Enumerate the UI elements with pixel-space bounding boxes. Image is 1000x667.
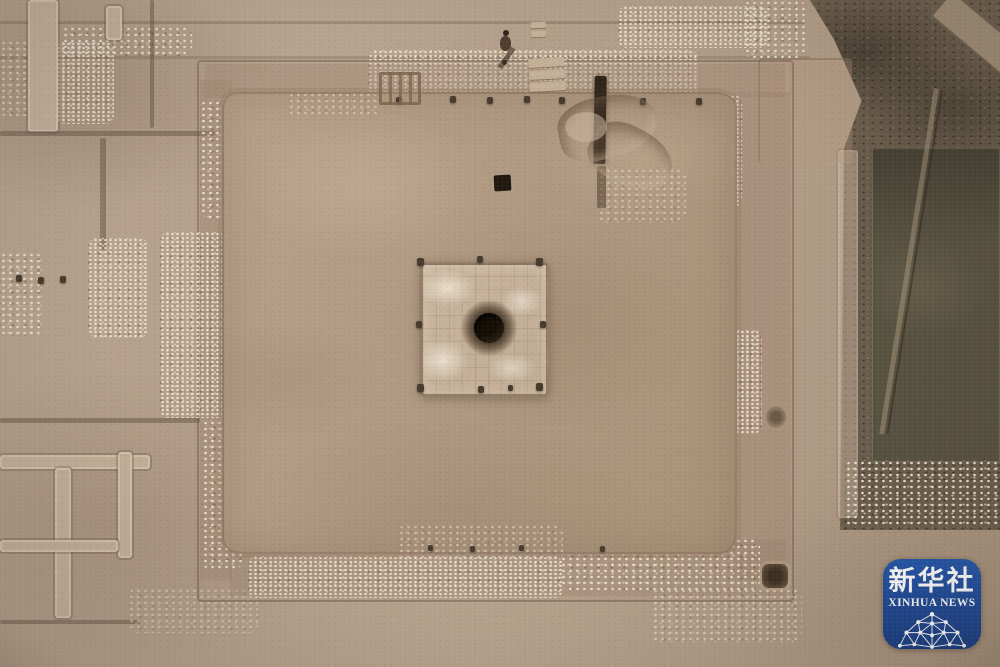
pit-edge-post: [477, 256, 483, 263]
trench-baulk: [28, 0, 58, 132]
trench-baulk: [118, 452, 132, 558]
trench-line: [0, 418, 200, 423]
scoop-mound: [565, 112, 607, 142]
trench-line: [0, 131, 215, 136]
small-stairs: [531, 22, 547, 38]
edge-post: [428, 545, 433, 551]
rubble-patch: [248, 556, 563, 598]
rubble-patch: [288, 92, 378, 118]
survey-instrument: [502, 60, 507, 65]
trench-line: [0, 620, 140, 624]
pit-corner-post: [417, 384, 424, 392]
edge-post: [559, 97, 565, 104]
central-pit: [420, 262, 549, 397]
person-head: [503, 30, 509, 36]
xinhua-watermark-badge: 新华社 XINHUA NEWS: [883, 559, 981, 649]
surveyor-person: [494, 30, 528, 86]
well-hole: [474, 313, 504, 343]
pit-corner-post: [536, 383, 543, 391]
aerial-photo: 新华社 XINHUA NEWS: [0, 0, 1000, 667]
small-pit: [766, 406, 786, 428]
pit-edge-post: [478, 386, 484, 393]
xinhua-cn-label: 新华社: [889, 568, 976, 595]
pit-corner-post: [417, 258, 424, 266]
edge-post: [524, 96, 530, 103]
stairs: [528, 57, 566, 92]
pit-edge-post: [540, 321, 546, 328]
xinhua-en-label: XINHUA NEWS: [888, 597, 975, 609]
trench-baulk: [106, 6, 122, 40]
posthole: [60, 276, 66, 283]
edge-post: [600, 546, 605, 552]
posthole: [38, 277, 44, 284]
rubble-patch: [744, 0, 806, 58]
trench-line: [100, 138, 106, 250]
posthole: [16, 275, 22, 282]
pit-edge-post: [416, 321, 422, 328]
rubble-patch: [845, 460, 1000, 528]
pit-corner-post: [536, 258, 543, 266]
edge-post: [487, 97, 493, 104]
ladder-frame: [379, 72, 421, 105]
pit-edge-post: [508, 385, 513, 391]
marker-board: [494, 175, 512, 192]
small-square-pit: [762, 564, 788, 588]
trench-baulk: [0, 540, 118, 552]
edge-post: [470, 546, 475, 552]
edge-post: [450, 96, 456, 103]
network-dome-icon: [889, 611, 975, 649]
person-body: [500, 36, 511, 51]
rubble-patch: [398, 524, 563, 562]
rubble-patch: [88, 238, 148, 338]
rubble-patch: [0, 252, 42, 336]
rubble-patch: [56, 42, 114, 124]
edge-post: [696, 98, 702, 105]
rubble-patch: [652, 588, 802, 643]
edge-post: [519, 545, 524, 551]
trench-line: [150, 0, 154, 128]
